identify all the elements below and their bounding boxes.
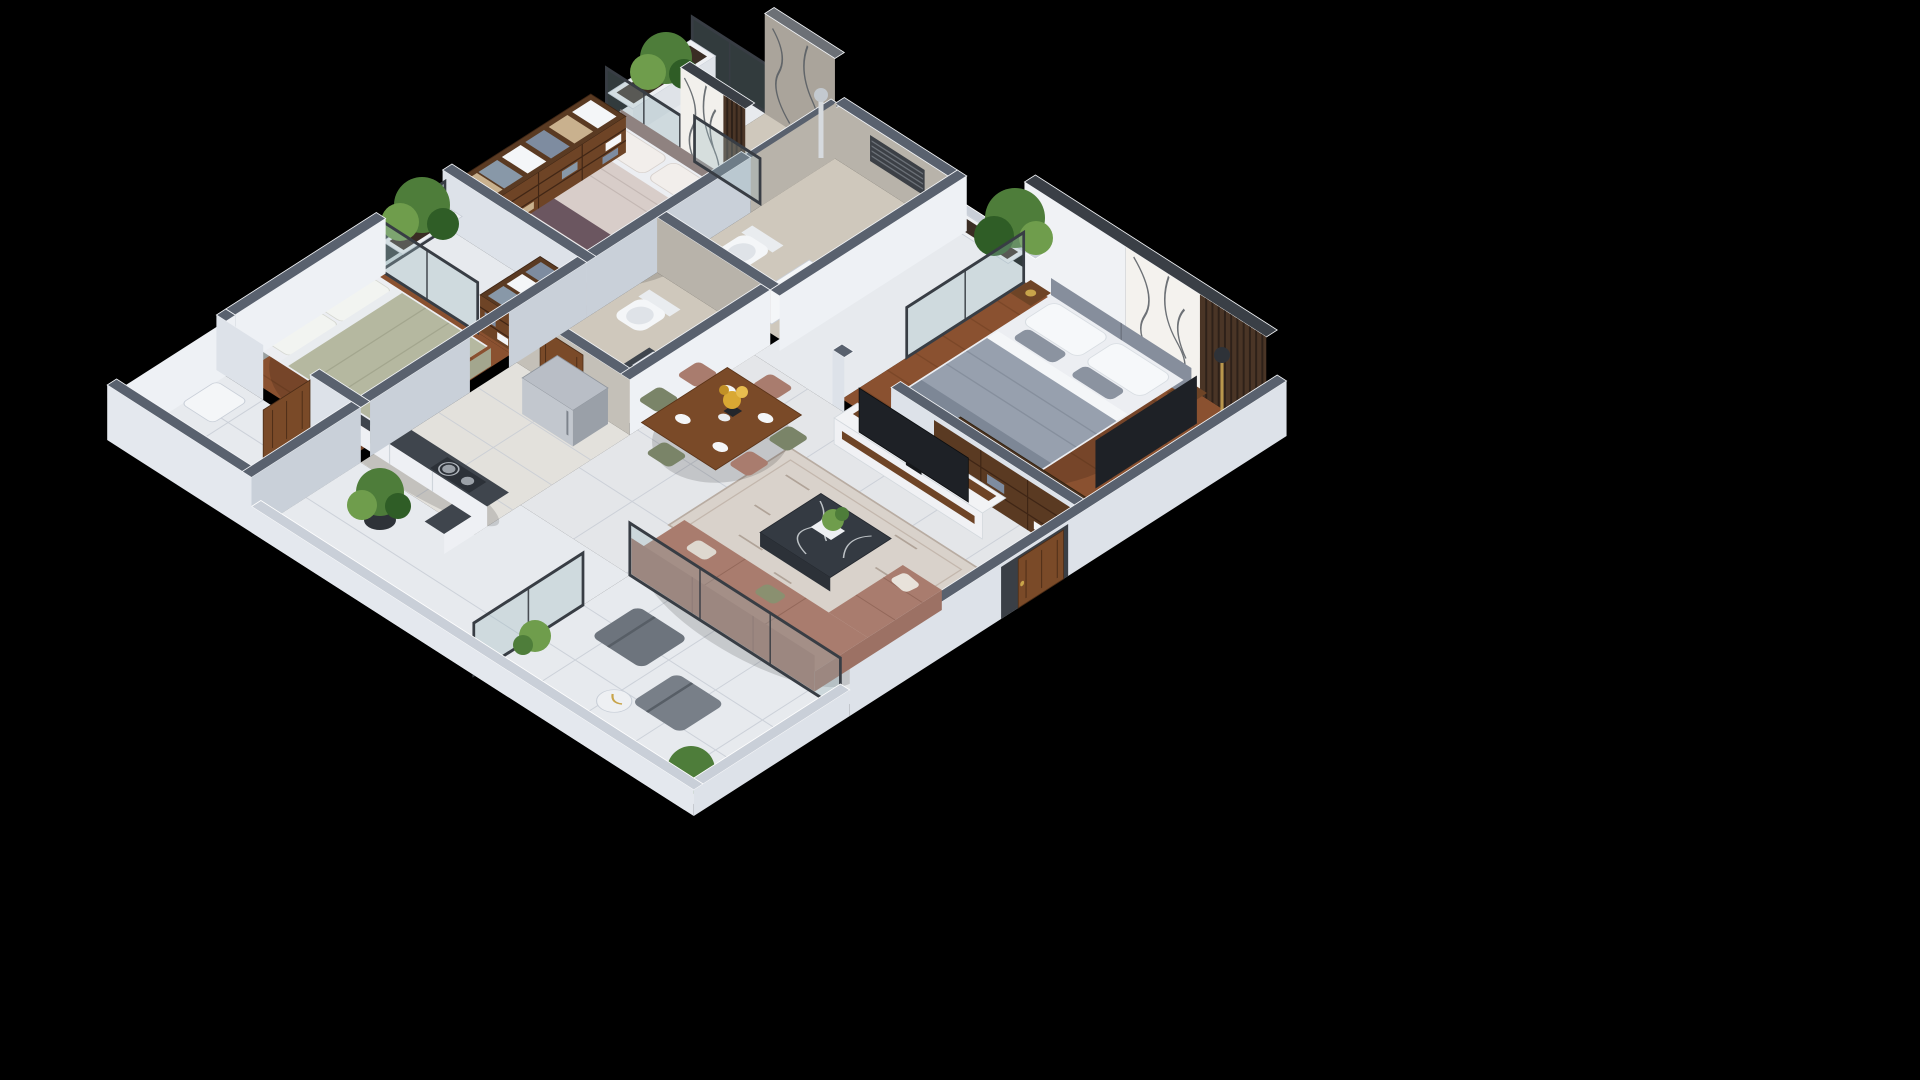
isometric-apartment-svg [0,0,1920,1080]
floor-plan-render [0,0,1920,1080]
